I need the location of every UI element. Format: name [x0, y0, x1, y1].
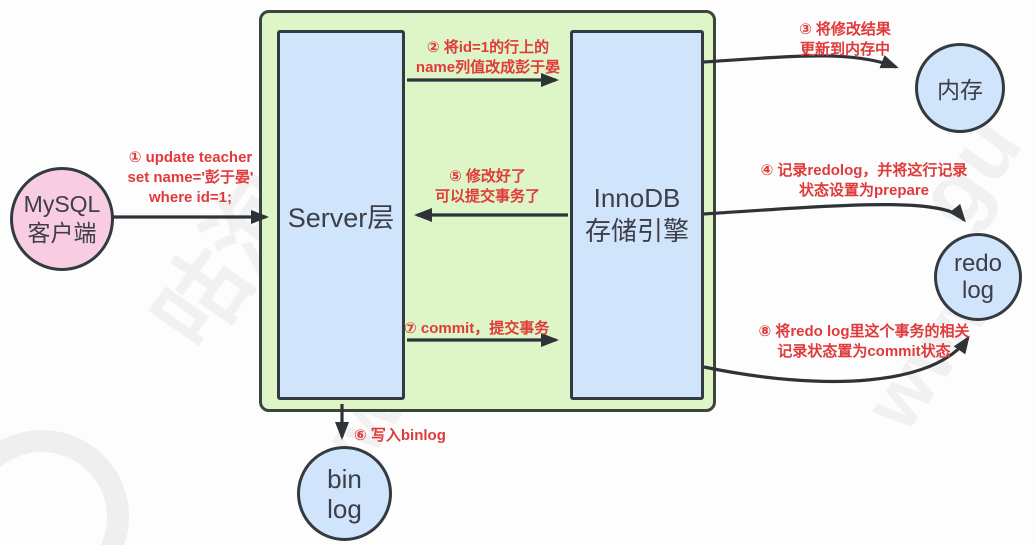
step3-label: ③ 将修改结果 更新到内存中 — [745, 20, 945, 60]
mysql-client-label: 客户端 — [28, 219, 97, 248]
innodb-label: InnoDB — [594, 182, 681, 215]
memory-label: 内存 — [937, 71, 983, 105]
redo-log-node: redo log — [934, 233, 1022, 321]
step4-label: ④ 记录redolog，并将这行记录 状态设置为prepare — [728, 161, 1000, 201]
step5-label: ⑤ 修改好了 可以提交事务了 — [400, 167, 575, 207]
bin-log-label: bin — [327, 464, 362, 494]
mysql-client-node: MySQL 客户端 — [10, 167, 114, 271]
diagram-canvas: 咕泡 www gu www MySQL 客户端 Server层 InnoDB 存… — [0, 0, 1034, 545]
redo-log-label: redo — [954, 250, 1002, 277]
bin-log-label: log — [327, 494, 362, 524]
step7-label: ⑦ commit，提交事务 — [404, 319, 589, 339]
step8-label: ⑧ 将redo log里这个事务的相关 记录状态置为commit状态 — [723, 322, 1005, 362]
mysql-client-label: MySQL — [24, 190, 101, 219]
redo-log-label: log — [962, 277, 994, 304]
watermark-logo-circle — [0, 430, 129, 545]
bin-log-node: bin log — [297, 446, 392, 541]
innodb-label: 存储引擎 — [585, 215, 689, 248]
step6-label: ⑥ 写入binlog — [354, 426, 494, 446]
server-layer-label: Server层 — [288, 196, 395, 235]
step1-label: ① update teacher set name='彭于晏' where id… — [108, 148, 273, 208]
innodb-engine-node: InnoDB 存储引擎 — [570, 30, 704, 400]
step2-label: ② 将id=1的行上的 name列值改成彭于晏 — [398, 38, 578, 78]
server-layer-node: Server层 — [277, 30, 405, 400]
arrow-step4-innodb-to-redolog — [704, 205, 964, 220]
